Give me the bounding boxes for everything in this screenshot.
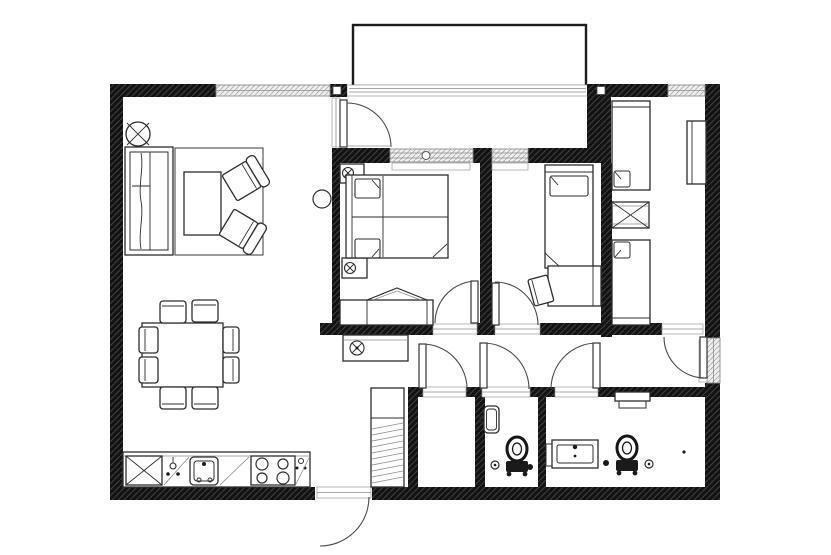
shelving-unit xyxy=(371,388,404,487)
wall-light-icon xyxy=(313,190,331,208)
ceiling-light-icon xyxy=(126,122,150,146)
toilet xyxy=(506,437,528,476)
crossed-cabinet xyxy=(126,456,162,485)
crossed-side-table xyxy=(612,202,649,228)
cooktop xyxy=(251,456,295,485)
window xyxy=(216,85,330,96)
balcony-door xyxy=(332,98,391,147)
master-bedroom xyxy=(340,164,448,325)
window-sill xyxy=(392,163,470,170)
kitchen xyxy=(123,452,310,487)
master-bedroom-door xyxy=(433,281,478,334)
wc-door xyxy=(480,343,530,397)
dresser-bench xyxy=(340,288,433,325)
bathroom xyxy=(546,392,686,475)
sideboard xyxy=(343,335,408,361)
dining-chair xyxy=(160,301,186,323)
dining-chair xyxy=(192,300,218,322)
armchair xyxy=(218,207,268,256)
wardrobe xyxy=(687,121,706,184)
bedroom-3 xyxy=(612,101,706,325)
desk xyxy=(548,266,601,306)
window-handle xyxy=(422,152,430,160)
window xyxy=(390,149,473,170)
paper-holder-icon xyxy=(491,461,499,469)
wc xyxy=(480,406,533,476)
bathroom-door xyxy=(551,343,600,397)
bedroom-2 xyxy=(528,165,601,306)
paper-holder-icon xyxy=(645,460,653,468)
wall-post xyxy=(597,87,605,95)
floor-drain-icon xyxy=(603,460,609,466)
dining-chair xyxy=(160,387,186,409)
dining-chair xyxy=(139,327,158,353)
bedroom-3-door xyxy=(662,324,707,378)
closet-door xyxy=(419,344,467,397)
nightstand xyxy=(342,258,367,278)
dining-chair xyxy=(223,327,239,353)
toilet xyxy=(616,436,638,475)
window-sill xyxy=(492,163,528,170)
window xyxy=(668,85,705,96)
window xyxy=(492,149,528,170)
coffee-table xyxy=(184,172,221,235)
floor-plan-page xyxy=(0,0,831,555)
living-room xyxy=(125,122,331,256)
balcony-railing xyxy=(353,25,586,86)
floor-plan-canvas xyxy=(0,0,831,555)
dining-chair xyxy=(223,357,239,383)
entry-area xyxy=(343,335,408,487)
balcony-threshold xyxy=(347,85,588,96)
floor-drain-icon xyxy=(682,450,685,453)
entrance-door xyxy=(317,487,371,546)
vanity-sink xyxy=(546,440,598,468)
wall-shelf xyxy=(615,392,650,408)
double-bed xyxy=(346,175,448,258)
single-bed xyxy=(612,240,650,325)
dining-chair xyxy=(192,387,218,409)
wall-post xyxy=(333,87,341,95)
single-bed xyxy=(545,165,593,268)
sofa xyxy=(125,147,173,255)
dining-chair xyxy=(139,357,158,383)
balcony xyxy=(347,25,588,96)
single-bed xyxy=(612,101,650,190)
kitchen-sink xyxy=(190,457,218,485)
dining-area xyxy=(139,300,239,409)
floor-drain-icon xyxy=(527,464,533,470)
